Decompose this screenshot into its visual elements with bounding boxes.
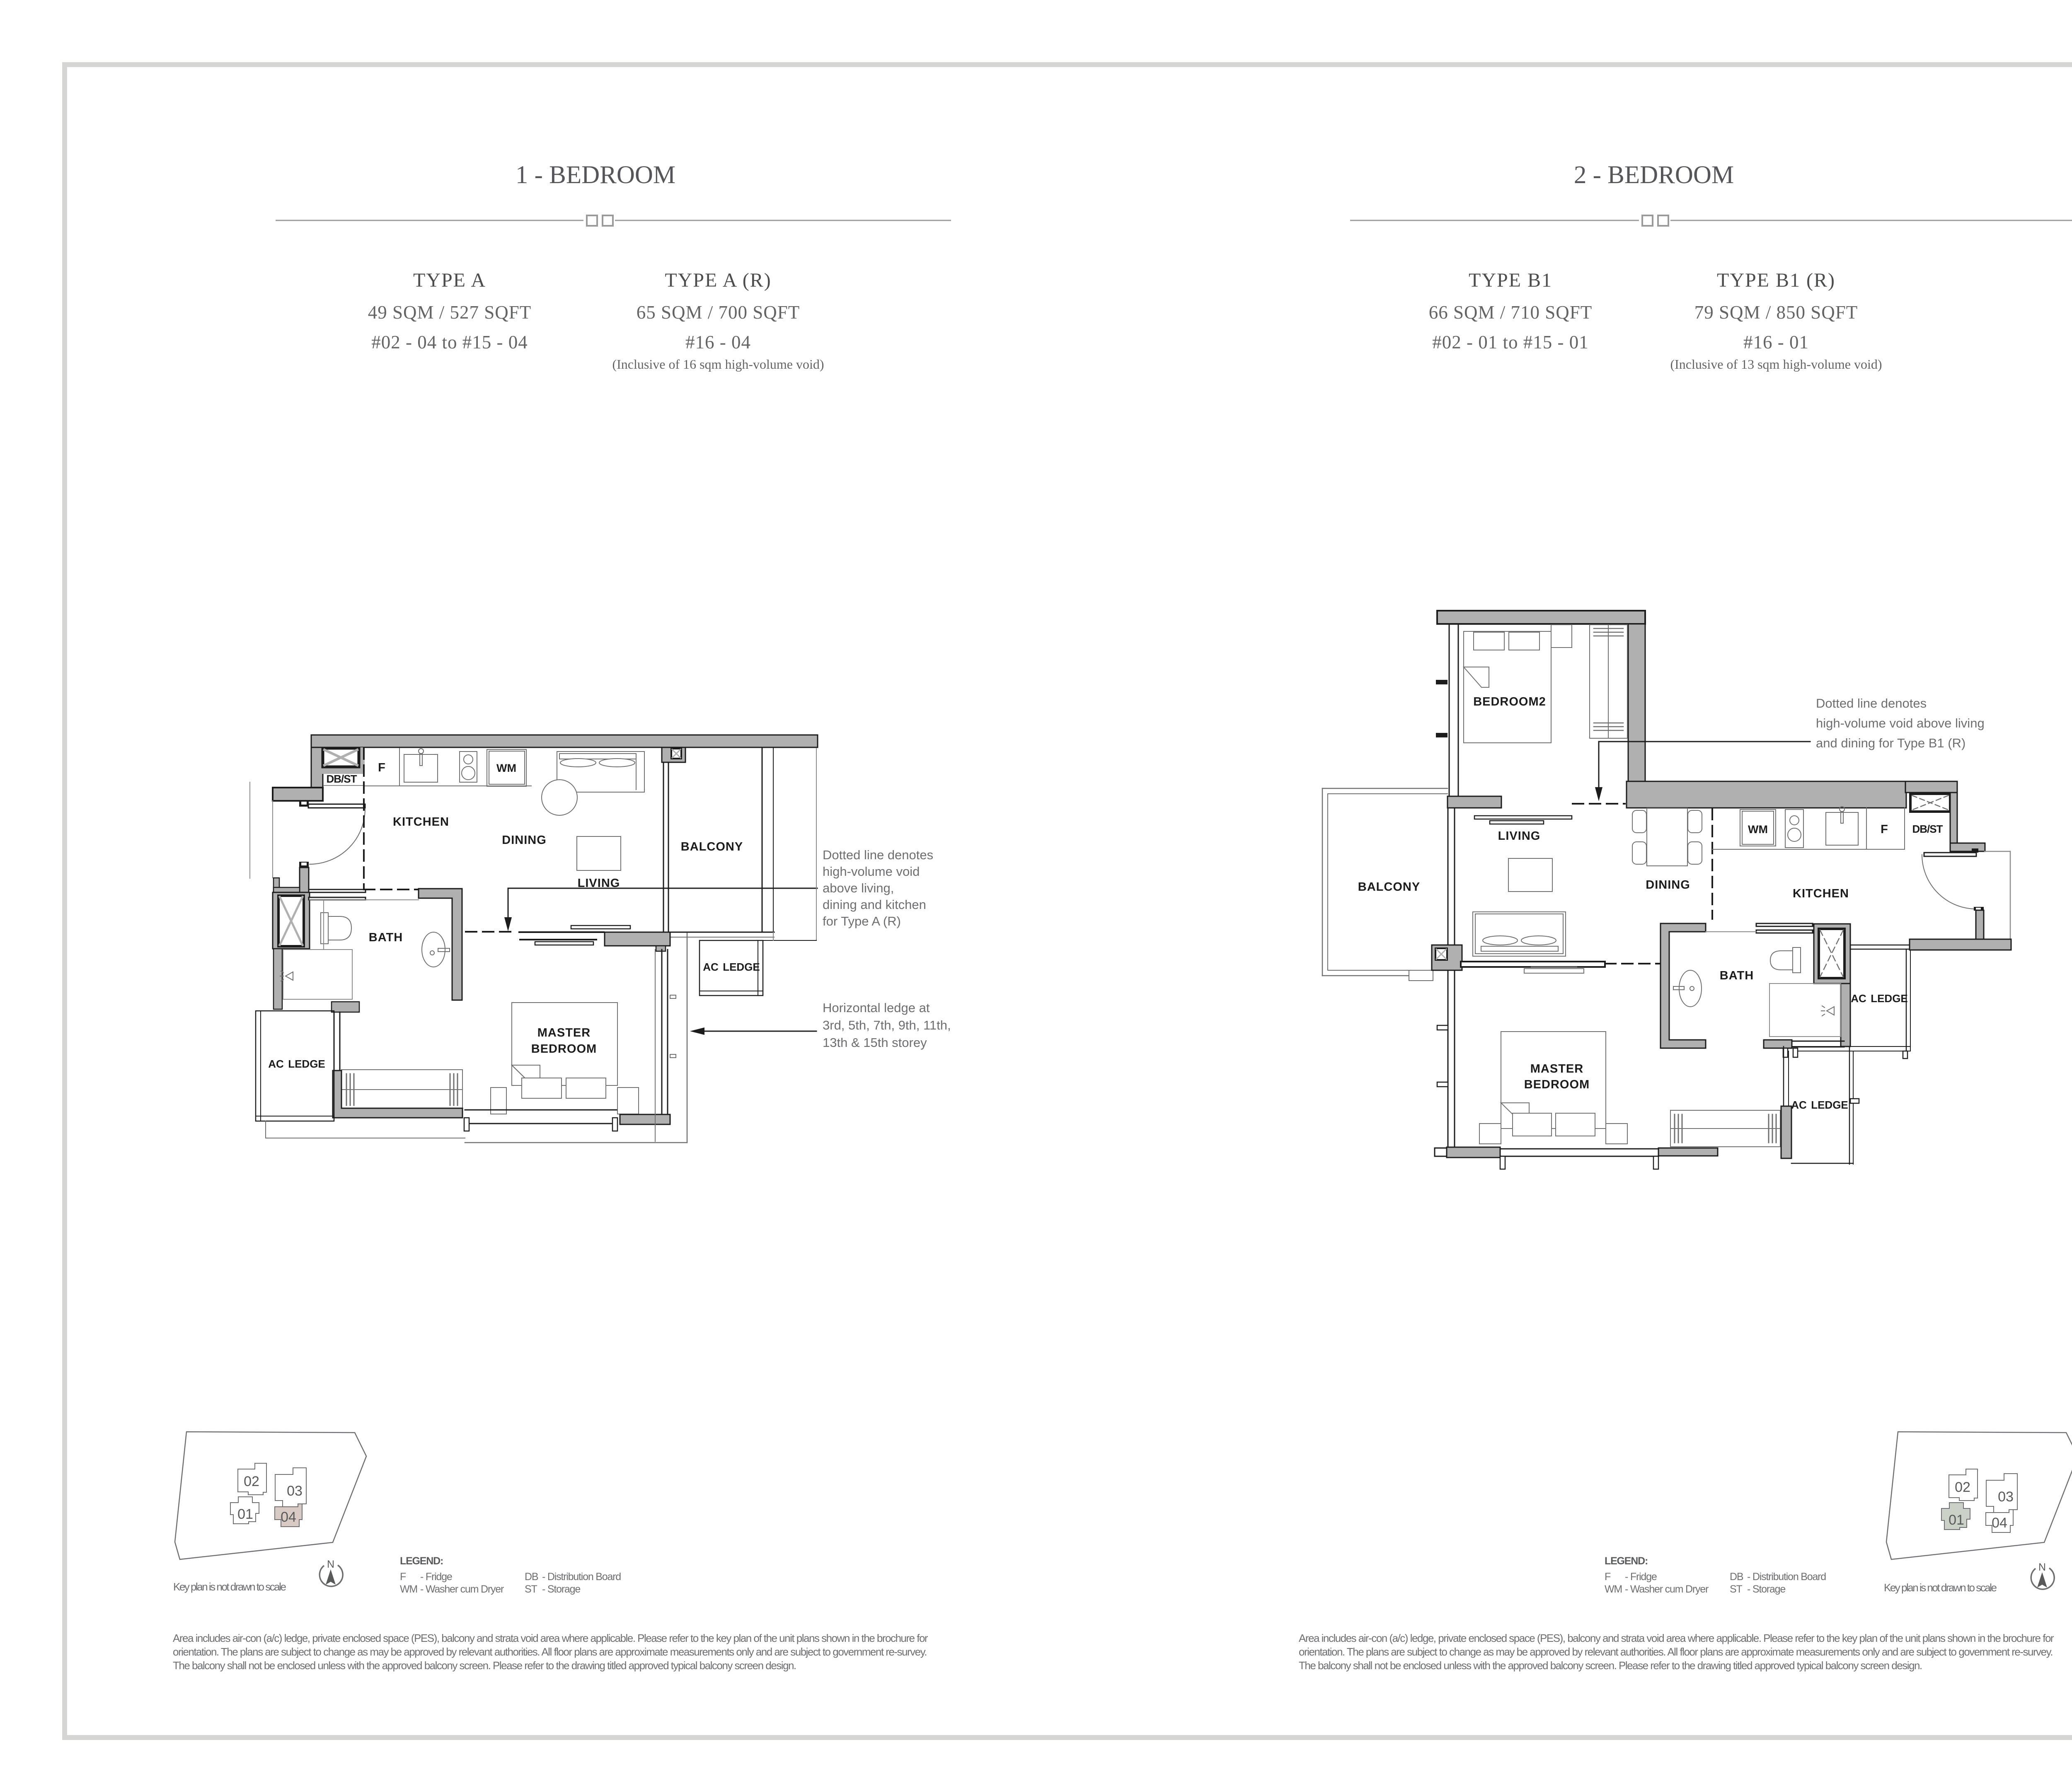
svg-text:13th & 15th storey: 13th & 15th storey (823, 1035, 927, 1050)
svg-text:for Type A (R): for Type A (R) (823, 914, 901, 928)
svg-text:BALCONY: BALCONY (1358, 880, 1420, 894)
svg-text:DINING: DINING (502, 834, 547, 847)
svg-text:and dining for Type B1 (R): and dining for Type B1 (R) (1816, 736, 1965, 750)
svg-text:WM: WM (1748, 823, 1768, 836)
svg-text:Dotted line denotes: Dotted line denotes (1816, 696, 1927, 711)
svg-text:dining and kitchen: dining and kitchen (823, 897, 926, 912)
svg-text:BATH: BATH (1720, 969, 1754, 982)
svg-text:Dotted line denotes: Dotted line denotes (823, 848, 933, 862)
svg-text:KITCHEN: KITCHEN (1793, 887, 1849, 900)
svg-text:BEDROOM: BEDROOM (1524, 1078, 1590, 1091)
svg-text:AC LEDGE: AC LEDGE (1791, 1099, 1848, 1111)
svg-text:04: 04 (281, 1509, 296, 1525)
svg-text:01: 01 (1949, 1512, 1964, 1528)
svg-text:MASTER: MASTER (1530, 1062, 1583, 1075)
svg-text:3rd, 5th, 7th, 9th, 11th,: 3rd, 5th, 7th, 9th, 11th, (823, 1018, 951, 1032)
svg-text:BALCONY: BALCONY (681, 840, 743, 853)
svg-text:02: 02 (244, 1474, 259, 1489)
svg-text:KITCHEN: KITCHEN (393, 815, 449, 829)
svg-text:DB/ST: DB/ST (327, 773, 357, 785)
svg-text:above living,: above living, (823, 881, 894, 895)
svg-text:03: 03 (287, 1483, 303, 1499)
svg-text:N: N (327, 1560, 334, 1570)
svg-text:AC LEDGE: AC LEDGE (1851, 992, 1908, 1005)
svg-text:F: F (378, 761, 385, 774)
svg-text:BEDROOM: BEDROOM (531, 1042, 597, 1056)
svg-text:high-volume void above living: high-volume void above living (1816, 716, 1985, 730)
svg-text:AC LEDGE: AC LEDGE (703, 961, 760, 973)
svg-text:DB/ST: DB/ST (1912, 823, 1943, 835)
svg-text:BEDROOM2: BEDROOM2 (1473, 695, 1546, 708)
svg-text:AC LEDGE: AC LEDGE (268, 1058, 325, 1070)
svg-text:high-volume void: high-volume void (823, 864, 920, 879)
svg-text:Horizontal ledge at: Horizontal ledge at (823, 1001, 930, 1015)
svg-text:03: 03 (1998, 1489, 2014, 1505)
svg-text:WM: WM (496, 762, 516, 774)
svg-text:F: F (1881, 823, 1888, 836)
svg-text:BATH: BATH (369, 931, 403, 944)
svg-text:02: 02 (1955, 1479, 1970, 1495)
svg-text:DINING: DINING (1646, 878, 1690, 892)
svg-text:MASTER: MASTER (537, 1026, 591, 1039)
svg-text:01: 01 (237, 1506, 253, 1522)
svg-text:04: 04 (1992, 1515, 2007, 1531)
svg-text:N: N (2038, 1563, 2046, 1573)
svg-text:LIVING: LIVING (1498, 829, 1541, 843)
